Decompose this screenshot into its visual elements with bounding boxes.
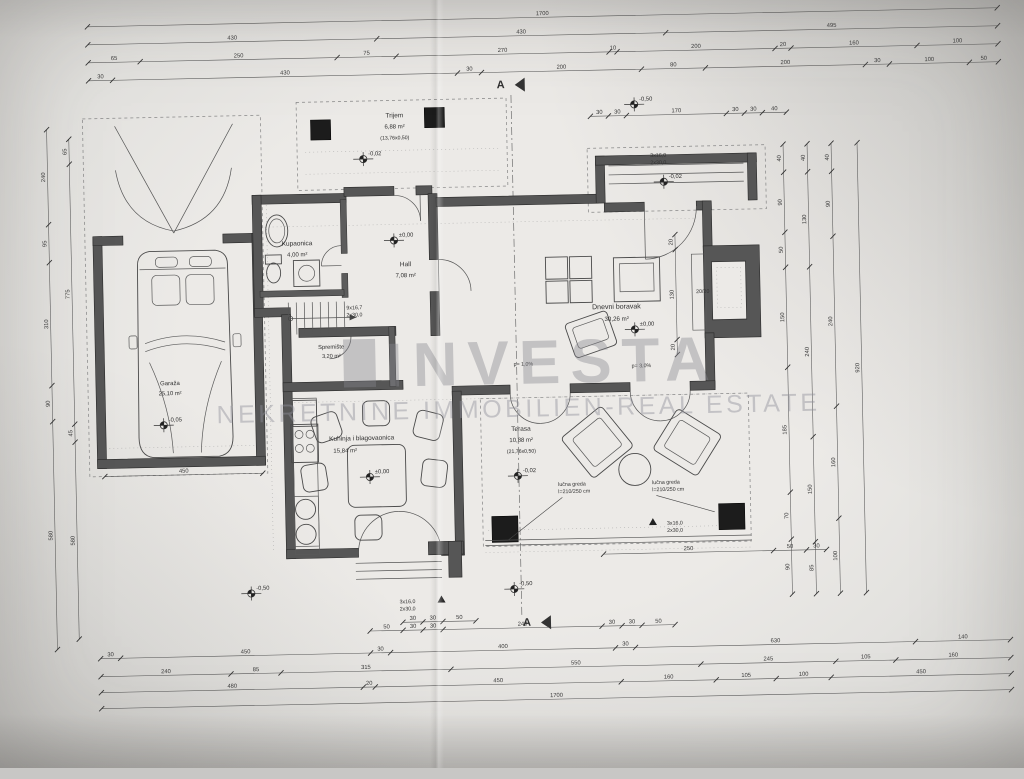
dim-label: 245 bbox=[763, 656, 773, 662]
dim-label: 550 bbox=[571, 660, 581, 666]
dim-chain: 450 bbox=[102, 467, 265, 479]
note-text: 2x30,0 bbox=[400, 606, 416, 612]
dim-label: 240 bbox=[805, 347, 811, 357]
note-text: 2x30,0 bbox=[650, 160, 666, 166]
bathroom-fixtures-part bbox=[293, 260, 320, 287]
walls-part bbox=[286, 548, 358, 559]
dim-label: 90 bbox=[46, 400, 52, 407]
watermark-subtitle: NEKRETNINE IMMOBILIEN-REAL ESTATE bbox=[216, 389, 820, 430]
dim-label: 105 bbox=[741, 673, 751, 679]
level-quadrant bbox=[514, 472, 518, 476]
dim-label: 30 bbox=[410, 624, 417, 630]
note-text: 9x16,7 bbox=[346, 305, 362, 311]
dim-chain: 6577545580 bbox=[62, 137, 82, 642]
kitchen-exit-steps-part bbox=[356, 578, 442, 580]
room-label-kupaonica: Kupaonica bbox=[282, 240, 313, 248]
level-marker: -0,50 bbox=[504, 581, 533, 596]
kitchen-exit-steps-part bbox=[356, 562, 442, 564]
dim-label: 30 bbox=[466, 67, 473, 73]
dim-label: 30 bbox=[430, 623, 437, 629]
dim-label: 100 bbox=[833, 551, 839, 561]
fireplace-part bbox=[711, 261, 746, 320]
level-quadrant bbox=[251, 593, 255, 597]
dim-label: 50 bbox=[787, 544, 794, 550]
dim-label: 50 bbox=[779, 247, 785, 254]
dim-label: 140 bbox=[958, 634, 968, 640]
dim-chain: 920 bbox=[850, 140, 869, 595]
dim-line bbox=[88, 44, 998, 63]
dim-label: 90 bbox=[778, 199, 784, 206]
kitchen-appliances-part bbox=[306, 430, 314, 438]
door-swings-part bbox=[438, 259, 471, 292]
dim-label: 920 bbox=[855, 363, 861, 373]
dim-label: 240 bbox=[828, 316, 834, 326]
dining-set-part bbox=[300, 462, 329, 493]
dim-label: 65 bbox=[111, 56, 118, 62]
car-part bbox=[145, 343, 225, 352]
dim-label: 430 bbox=[516, 29, 526, 35]
dim-chain: 65250752701020020160100 bbox=[85, 37, 1000, 65]
room-area-kuhinja: 15,84 m² bbox=[333, 448, 357, 454]
walls-part bbox=[97, 456, 265, 469]
dim-line bbox=[807, 144, 816, 594]
dim-line bbox=[89, 62, 999, 81]
scanned-paper-sheet: 1700430430495652507527010200201601003043… bbox=[0, 0, 1024, 768]
level-quadrant bbox=[160, 422, 164, 426]
walls-part bbox=[93, 236, 123, 246]
dim-line bbox=[783, 144, 792, 594]
walls-part bbox=[344, 186, 394, 196]
dim-label: 75 bbox=[363, 51, 370, 57]
dim-line bbox=[831, 143, 840, 593]
note-arrow bbox=[437, 595, 445, 602]
dim-label: 450 bbox=[179, 469, 189, 475]
walls-part bbox=[282, 315, 296, 559]
partitions-part bbox=[260, 289, 344, 297]
walls-part bbox=[747, 153, 757, 200]
dim-label: 30 bbox=[596, 110, 603, 116]
dim-label: 580 bbox=[71, 536, 77, 546]
dim-label: 70 bbox=[784, 512, 790, 519]
dim-label: 30 bbox=[732, 107, 739, 113]
room-note-trijem: (13,76x0,50) bbox=[380, 135, 410, 142]
room-area-kupaonica: 4,00 m² bbox=[287, 252, 307, 258]
dim-label: 40 bbox=[771, 106, 778, 112]
level-text: -0,50 bbox=[256, 586, 269, 592]
section-marker-bottom: A bbox=[523, 617, 531, 629]
dim-label: 450 bbox=[241, 649, 251, 655]
level-quadrant bbox=[370, 477, 374, 481]
level-text: ±0,00 bbox=[399, 233, 414, 239]
dim-label: 250 bbox=[234, 53, 244, 59]
terrace-column bbox=[492, 516, 519, 543]
porch-column bbox=[424, 107, 444, 127]
kitchen-exit-steps bbox=[356, 562, 442, 580]
bathroom-fixtures-part bbox=[266, 263, 280, 283]
dim-label: 30 bbox=[813, 543, 820, 549]
walls-part bbox=[436, 194, 598, 206]
door-swings-part bbox=[115, 169, 173, 232]
level-text: ±0,00 bbox=[375, 469, 390, 475]
dashed-boundaries-part bbox=[488, 525, 748, 530]
level-marker: ±0,00 bbox=[384, 233, 414, 248]
door-swings-part bbox=[394, 195, 421, 222]
dim-label: 30 bbox=[97, 74, 104, 80]
floor-plan-wrap: 1700430430495652507527010200201601003043… bbox=[0, 0, 1024, 779]
dim-label: 450 bbox=[493, 678, 503, 684]
level-quadrant bbox=[366, 473, 370, 477]
door-swings-part bbox=[172, 168, 232, 231]
note-text: l=210/250 cm bbox=[558, 489, 591, 496]
dim-label: 90 bbox=[785, 563, 791, 570]
level-text: -0,05 bbox=[169, 417, 182, 423]
bathroom-fixtures-part bbox=[268, 219, 284, 243]
dim-label: 160 bbox=[831, 457, 837, 467]
note-text: 3x16,0 bbox=[667, 520, 683, 526]
dim-label: 240 bbox=[161, 669, 171, 675]
dim-label: 1700 bbox=[536, 11, 549, 17]
plan-note: 3x16,02x30,0 bbox=[399, 595, 445, 612]
watermark-logo-mark bbox=[343, 339, 376, 388]
dim-label: 310 bbox=[44, 319, 50, 329]
room-label-trijem: Trijem bbox=[385, 112, 403, 119]
dim-label: 50 bbox=[981, 56, 988, 62]
dim-label: 30 bbox=[614, 109, 621, 115]
level-text: -0,02 bbox=[669, 174, 682, 180]
dim-label: 630 bbox=[771, 638, 781, 644]
dashed-boundaries-part bbox=[306, 170, 501, 174]
plan-note: 3x16,02x30,0 bbox=[649, 517, 683, 534]
room-note-terasa: (21,76x0,50) bbox=[507, 449, 537, 456]
vestibule-steps-part bbox=[609, 181, 744, 184]
level-text: -0,02 bbox=[368, 151, 381, 157]
level-quadrant bbox=[164, 425, 168, 429]
walls-part bbox=[299, 326, 396, 337]
terrace-furniture-part bbox=[618, 453, 651, 486]
walls-part bbox=[604, 202, 644, 212]
door-swings-part bbox=[644, 207, 645, 259]
level-quadrant bbox=[664, 182, 668, 186]
living-room-furniture-part bbox=[569, 256, 591, 278]
dim-label: 30 bbox=[609, 620, 616, 626]
dim-label: 40 bbox=[825, 154, 831, 161]
note-arrow bbox=[649, 518, 657, 525]
floor-plan: 1700430430495652507527010200201601003043… bbox=[0, 0, 1024, 779]
dim-label: 95 bbox=[42, 240, 48, 247]
plan-note: 9x16,72x30,0 bbox=[346, 305, 362, 319]
dim-chain: 4090240160100 bbox=[824, 141, 843, 596]
car-part bbox=[140, 268, 226, 270]
door-swings-part bbox=[321, 246, 341, 266]
kitchen-appliances-part bbox=[306, 444, 314, 452]
dim-line bbox=[88, 26, 998, 45]
dim-label: 30 bbox=[629, 619, 636, 625]
dim-label: 50 bbox=[655, 619, 662, 625]
columns bbox=[310, 101, 745, 546]
dim-label: 480 bbox=[227, 684, 237, 690]
room-area-dnevni: 30,26 m² bbox=[604, 316, 629, 324]
dim-label: 250 bbox=[684, 546, 694, 552]
dim-label: 150 bbox=[780, 312, 786, 322]
terrace-column bbox=[719, 503, 746, 530]
room-label-hall: Hall bbox=[400, 261, 412, 268]
bathroom-fixtures-part bbox=[298, 265, 314, 281]
walls-part bbox=[430, 292, 440, 336]
dim-label: 40 bbox=[801, 155, 807, 162]
room-label-dnevni: Dnevni boravak bbox=[592, 303, 641, 311]
dashed-boundaries-part bbox=[266, 201, 273, 550]
note-text: l=210/250 cm bbox=[652, 487, 685, 494]
dining-set-part bbox=[355, 515, 383, 541]
dim-label: 130 bbox=[802, 214, 808, 224]
room-area-terasa: 10,88 m² bbox=[509, 438, 533, 444]
level-text: -0,02 bbox=[523, 468, 536, 474]
dim-label: 30 bbox=[410, 616, 417, 622]
dim-label: 30 bbox=[750, 107, 757, 113]
car-part bbox=[152, 275, 181, 306]
dim-label: 50 bbox=[456, 615, 463, 621]
level-quadrant bbox=[360, 155, 364, 159]
car-part bbox=[145, 335, 225, 344]
plan-note: 3x16,02x30,0 bbox=[650, 153, 666, 167]
dim-label: 150 bbox=[808, 484, 814, 494]
kitchen-appliances-part bbox=[295, 430, 303, 438]
dim-label: 45 bbox=[68, 430, 74, 437]
dim-label: 430 bbox=[280, 70, 290, 76]
level-quadrant bbox=[248, 590, 252, 594]
dim-label: 20 bbox=[668, 239, 674, 246]
dining-set-part bbox=[420, 458, 448, 488]
dim-label: 160 bbox=[948, 653, 958, 659]
room-label-terasa: Terasa bbox=[511, 426, 531, 433]
living-room-furniture-part bbox=[545, 257, 567, 279]
walls-part bbox=[252, 193, 346, 204]
dim-label: 200 bbox=[556, 65, 566, 71]
car-part bbox=[129, 336, 137, 349]
room-area-trijem: 6,88 m² bbox=[384, 124, 404, 130]
dashed-boundaries-part bbox=[305, 148, 500, 152]
dim-label: 30 bbox=[874, 58, 881, 64]
dim-chain: 2505030 bbox=[601, 543, 829, 557]
dim-label: 40 bbox=[777, 155, 783, 162]
note-text: 3x16,0 bbox=[650, 153, 666, 159]
walls-part bbox=[448, 541, 462, 577]
dim-label: 30 bbox=[430, 615, 437, 621]
note-text: 2x30,0 bbox=[346, 312, 362, 318]
dim-label: 10 bbox=[610, 46, 617, 52]
partitions-part bbox=[340, 199, 347, 253]
dim-label: 160 bbox=[664, 674, 674, 680]
dim-label: 100 bbox=[799, 672, 809, 678]
dim-chain: 3043030200802003010050 bbox=[86, 55, 1001, 83]
level-quadrant bbox=[630, 101, 634, 105]
dim-label: 160 bbox=[849, 40, 859, 46]
room-label-garaza: Garaža bbox=[160, 381, 180, 387]
dim-label: 130 bbox=[670, 290, 676, 300]
level-marker: ±0,00 bbox=[360, 469, 390, 484]
dim-line bbox=[101, 674, 1011, 693]
dim-chain: 1700 bbox=[85, 2, 1000, 30]
level-quadrant bbox=[518, 476, 522, 480]
terrace-furniture-part-part bbox=[572, 417, 623, 468]
level-quadrant bbox=[514, 589, 518, 593]
level-marker: -0,02 bbox=[353, 151, 382, 166]
dim-label: 30 bbox=[107, 652, 114, 658]
walls-part bbox=[702, 201, 712, 251]
note-text: lučna greda bbox=[558, 481, 586, 488]
dim-label: 270 bbox=[498, 48, 508, 54]
section-marker-top: A bbox=[497, 79, 505, 91]
dim-label: 50 bbox=[383, 624, 390, 630]
dim-label: 90 bbox=[826, 201, 832, 208]
dim-chain: 430430495 bbox=[85, 19, 1000, 47]
dim-chain: 24085315550245105160 bbox=[98, 651, 1013, 679]
door-swings-part bbox=[172, 124, 235, 233]
room-label-kuhinja: Kuhinja i blagovaonica bbox=[329, 434, 395, 442]
section-arrow-top bbox=[515, 78, 525, 92]
car-part bbox=[233, 334, 241, 347]
kitchen-appliances-part bbox=[296, 524, 316, 544]
level-marker: -0,50 bbox=[241, 586, 270, 601]
watermark-logo-text: INVESTA bbox=[385, 325, 720, 401]
note-text: 3x16,0 bbox=[399, 599, 415, 605]
dim-label: 20 bbox=[780, 42, 787, 48]
level-text: -0,50 bbox=[519, 581, 532, 587]
dim-label: 315 bbox=[361, 665, 371, 671]
living-room-furniture-part bbox=[570, 280, 592, 302]
level-marker: -0,50 bbox=[624, 97, 653, 112]
dim-label: 170 bbox=[671, 108, 681, 114]
dim-chain: 304503040030630140 bbox=[98, 633, 1013, 661]
level-text: -0,50 bbox=[639, 97, 652, 103]
level-marker: -0,05 bbox=[154, 417, 183, 432]
porch-column bbox=[310, 120, 330, 140]
dim-label: 450 bbox=[916, 669, 926, 675]
dim-line bbox=[604, 549, 827, 554]
dim-label: 30 bbox=[377, 647, 384, 653]
dashed-boundaries-part bbox=[265, 218, 697, 227]
stairs-part bbox=[485, 540, 751, 546]
dim-label: 200 bbox=[691, 44, 701, 50]
car-part bbox=[155, 257, 177, 267]
car-part bbox=[186, 274, 215, 305]
dim-line bbox=[69, 139, 79, 639]
kitchen-exit-steps-part bbox=[356, 570, 442, 572]
dim-chain: 4090501501857090 bbox=[776, 142, 795, 597]
dim-label: 30 bbox=[622, 641, 629, 647]
watermark: INVESTA NEKRETNINE IMMOBILIEN-REAL ESTAT… bbox=[215, 323, 821, 430]
dim-chain: 48020450160105100450 bbox=[99, 667, 1014, 695]
living-room-furniture-part bbox=[546, 281, 568, 303]
room-area-spremiste: 3,20 m² bbox=[322, 354, 341, 360]
level-quadrant bbox=[363, 159, 367, 163]
dim-label: 580 bbox=[48, 531, 54, 541]
door-swings-part bbox=[644, 206, 697, 259]
dim-label: 775 bbox=[65, 289, 71, 299]
dim-label: 20 bbox=[366, 681, 373, 687]
kitchen-appliances-part bbox=[295, 499, 315, 519]
door-swings-part bbox=[115, 125, 174, 234]
room-label-spremiste: Spremište bbox=[318, 345, 344, 352]
note-leader bbox=[656, 494, 714, 513]
room-area-garaza: 25,10 m² bbox=[159, 391, 182, 397]
dim-label: 85 bbox=[809, 564, 815, 571]
note-text: lučna greda bbox=[652, 480, 680, 487]
dim-label: 80 bbox=[670, 62, 677, 68]
room-area-hall: 7,08 m² bbox=[395, 273, 415, 279]
dim-chain: 2409531090580 bbox=[40, 127, 60, 652]
dim-label: 100 bbox=[924, 57, 934, 63]
dim-label: 240 bbox=[41, 172, 47, 182]
level-quadrant bbox=[634, 104, 638, 108]
level-quadrant bbox=[511, 585, 515, 589]
dim-label: 430 bbox=[227, 35, 237, 41]
stairs-part bbox=[485, 535, 751, 541]
level-quadrant bbox=[394, 240, 398, 244]
kitchen-appliances-part bbox=[295, 444, 303, 452]
dim-chain: 4013024015085 bbox=[800, 141, 819, 596]
dim-label: 85 bbox=[253, 667, 260, 673]
level-marker: -0,02 bbox=[508, 468, 537, 483]
note-text: 20/20 bbox=[696, 289, 709, 295]
plan-note: lučna gredal=210/250 cm bbox=[507, 481, 592, 540]
dim-label: 100 bbox=[953, 38, 963, 44]
dim-label: 200 bbox=[780, 60, 790, 66]
dim-line bbox=[101, 658, 1011, 677]
living-room-furniture-part bbox=[620, 263, 655, 292]
level-quadrant bbox=[390, 237, 394, 241]
level-marker: -0,02 bbox=[654, 174, 683, 189]
dim-line bbox=[47, 130, 58, 650]
dim-label: 495 bbox=[827, 23, 837, 29]
bathroom-fixtures bbox=[264, 214, 319, 287]
dim-line bbox=[101, 640, 1011, 659]
car-part bbox=[149, 362, 173, 453]
terrace-furniture-part-part bbox=[664, 419, 711, 465]
door-swings-part bbox=[358, 511, 400, 553]
plan-note: 20/20 bbox=[696, 289, 709, 295]
dashed-boundaries-part bbox=[101, 445, 259, 448]
dim-label: 185 bbox=[782, 425, 788, 435]
plan-note: lučna gredal=210/250 cm bbox=[652, 479, 715, 513]
dim-chain: 3030170303040 bbox=[588, 106, 789, 119]
kitchen-appliances-part bbox=[291, 424, 319, 463]
dim-label: 65 bbox=[62, 149, 68, 156]
note-text: 2x30,0 bbox=[667, 528, 683, 534]
walls-part bbox=[93, 237, 107, 469]
dim-label: 1700 bbox=[550, 693, 563, 699]
door-swings-part bbox=[438, 260, 439, 292]
level-quadrant bbox=[660, 178, 664, 182]
dim-label: 400 bbox=[498, 644, 508, 650]
car-part bbox=[189, 256, 211, 266]
dim-label: 105 bbox=[861, 654, 871, 660]
